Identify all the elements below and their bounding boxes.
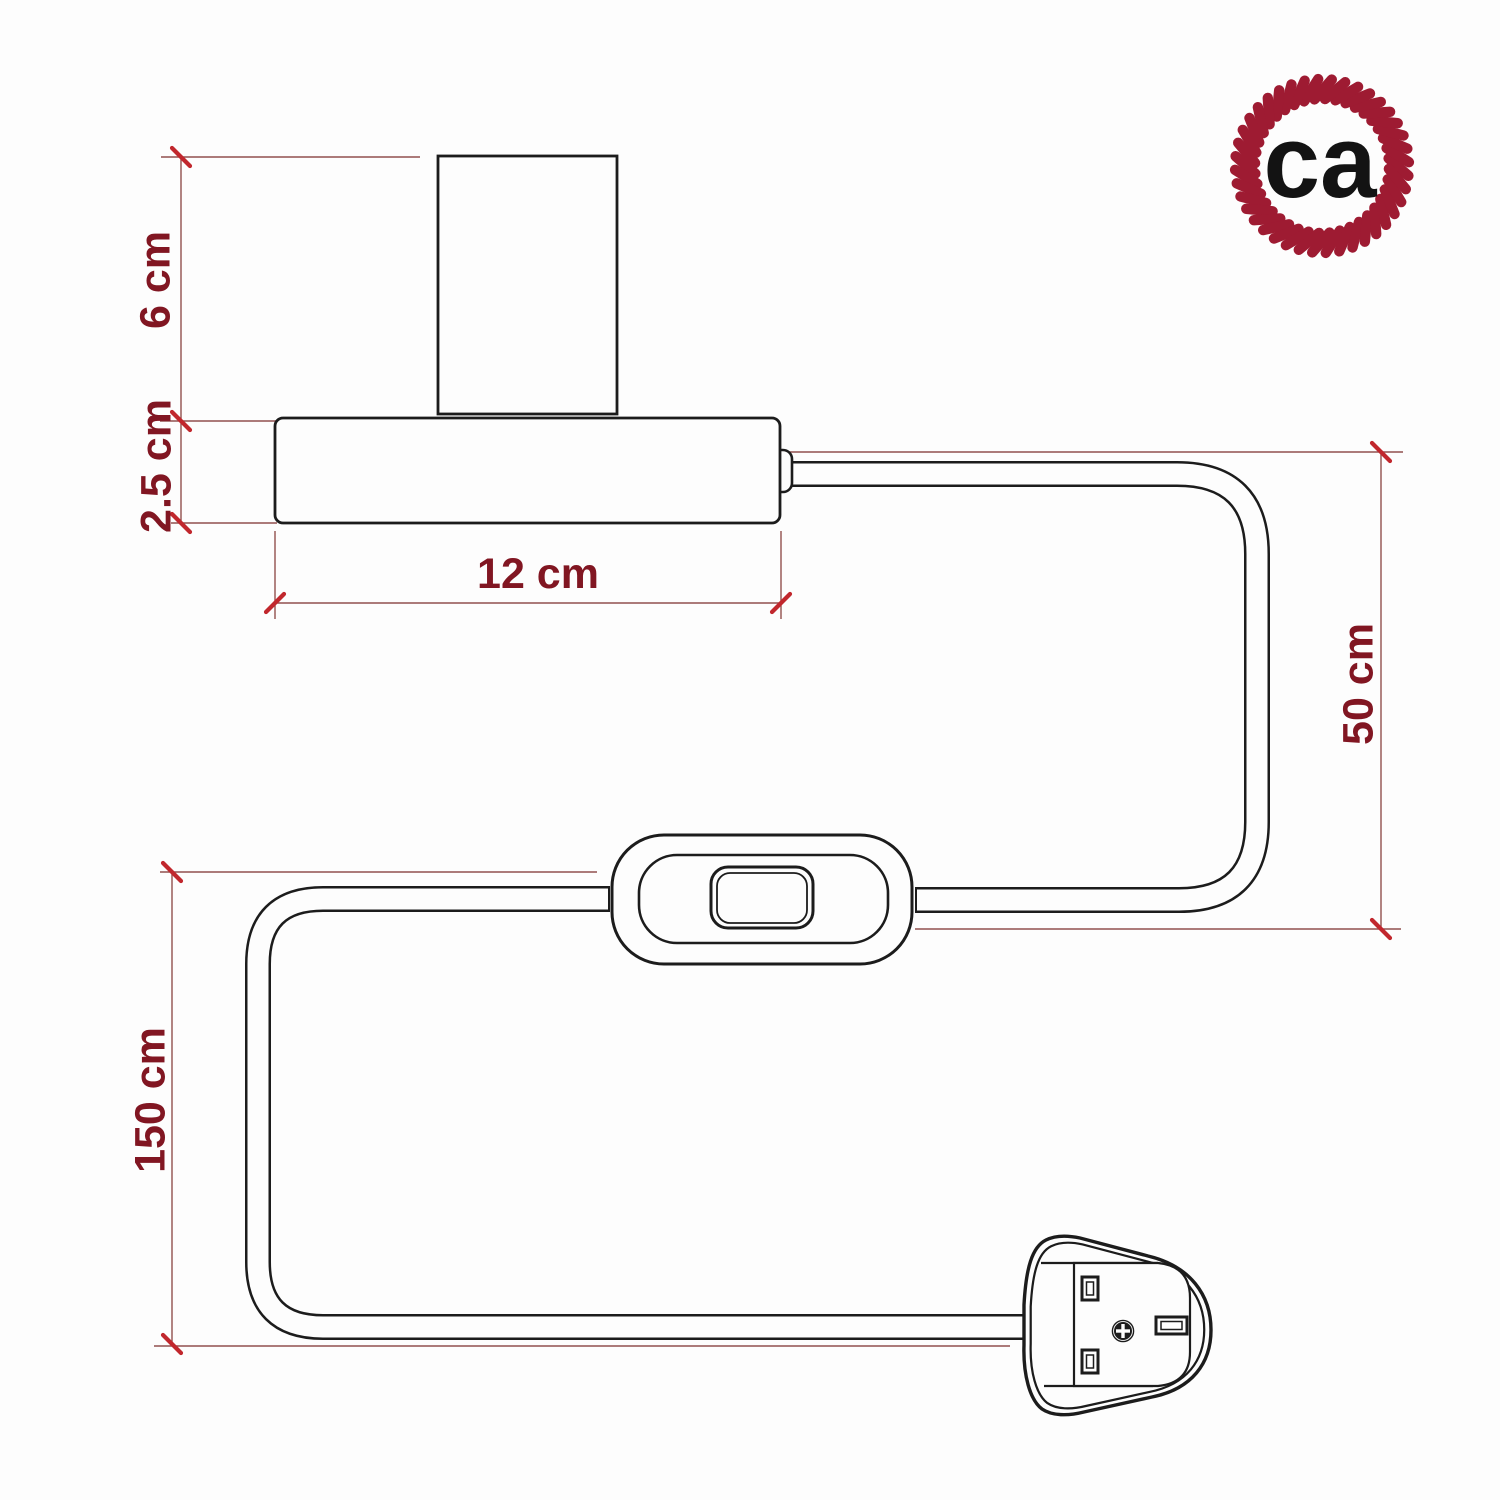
svg-text:150 cm: 150 cm xyxy=(126,1027,174,1173)
svg-text:6 cm: 6 cm xyxy=(131,231,179,329)
svg-text:2.5 cm: 2.5 cm xyxy=(132,399,180,533)
svg-text:50 cm: 50 cm xyxy=(1334,623,1382,745)
svg-text:ca: ca xyxy=(1264,104,1378,219)
svg-text:12 cm: 12 cm xyxy=(477,550,599,598)
